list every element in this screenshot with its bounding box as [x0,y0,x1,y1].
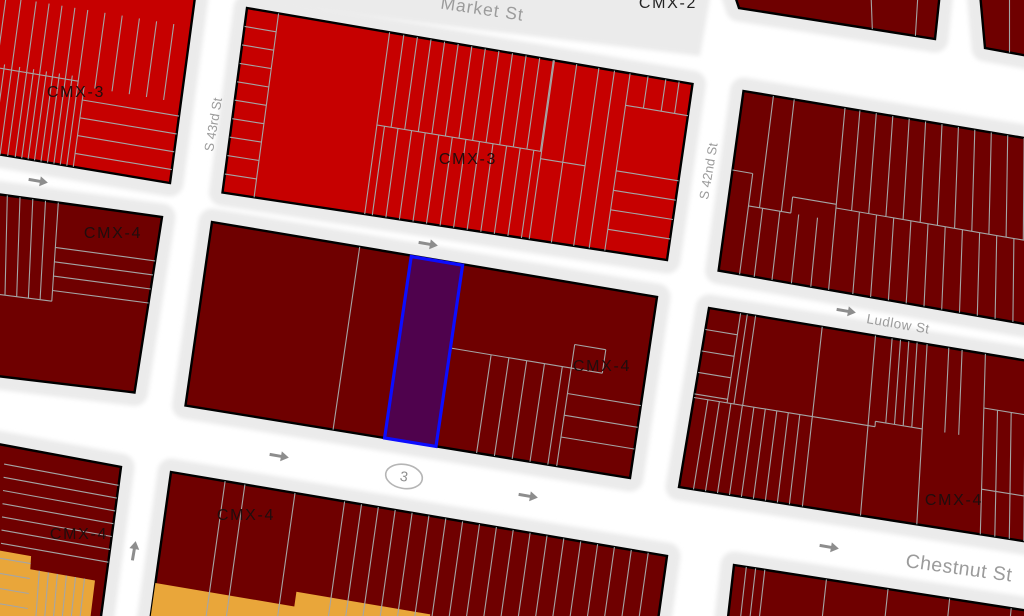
svg-text:CMX-3: CMX-3 [47,84,105,101]
svg-text:CMX-3: CMX-3 [439,151,497,168]
svg-text:CMX-2: CMX-2 [639,0,697,12]
svg-text:CMX-4: CMX-4 [925,492,983,509]
svg-text:CMX-4: CMX-4 [84,225,142,242]
svg-text:CMX-4: CMX-4 [217,507,275,524]
svg-text:CMX-4: CMX-4 [50,526,108,543]
svg-text:CMX-4: CMX-4 [573,358,631,375]
